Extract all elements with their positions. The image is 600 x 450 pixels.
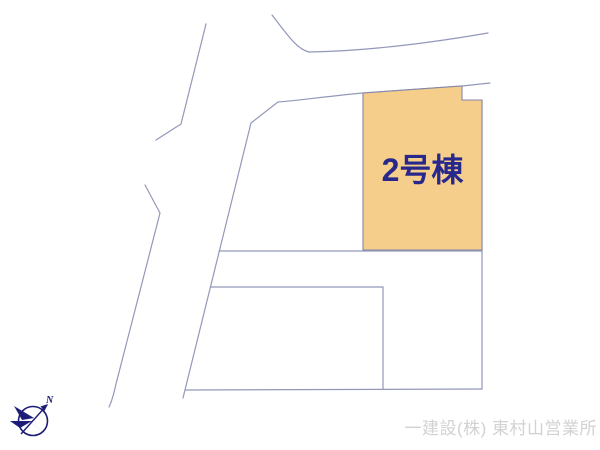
- lot-line-bottom: [186, 389, 482, 390]
- compass-icon: N: [10, 395, 54, 439]
- lot-line-middle: [211, 287, 383, 389]
- site-plan-drawing: N: [0, 0, 600, 450]
- road-edge-top: [272, 15, 488, 52]
- parcel-2-label: 2号棟: [363, 153, 482, 188]
- site-plan-canvas: N 2号棟 一建設(株) 東村山営業所: [0, 0, 600, 450]
- road-edge-left-upper: [156, 24, 206, 140]
- compass-north-label: N: [45, 395, 54, 406]
- road-edge-left-lower: [109, 185, 160, 407]
- compass-bird-wing-upper: [14, 406, 34, 420]
- company-credit: 一建設(株) 東村山営業所: [404, 414, 597, 439]
